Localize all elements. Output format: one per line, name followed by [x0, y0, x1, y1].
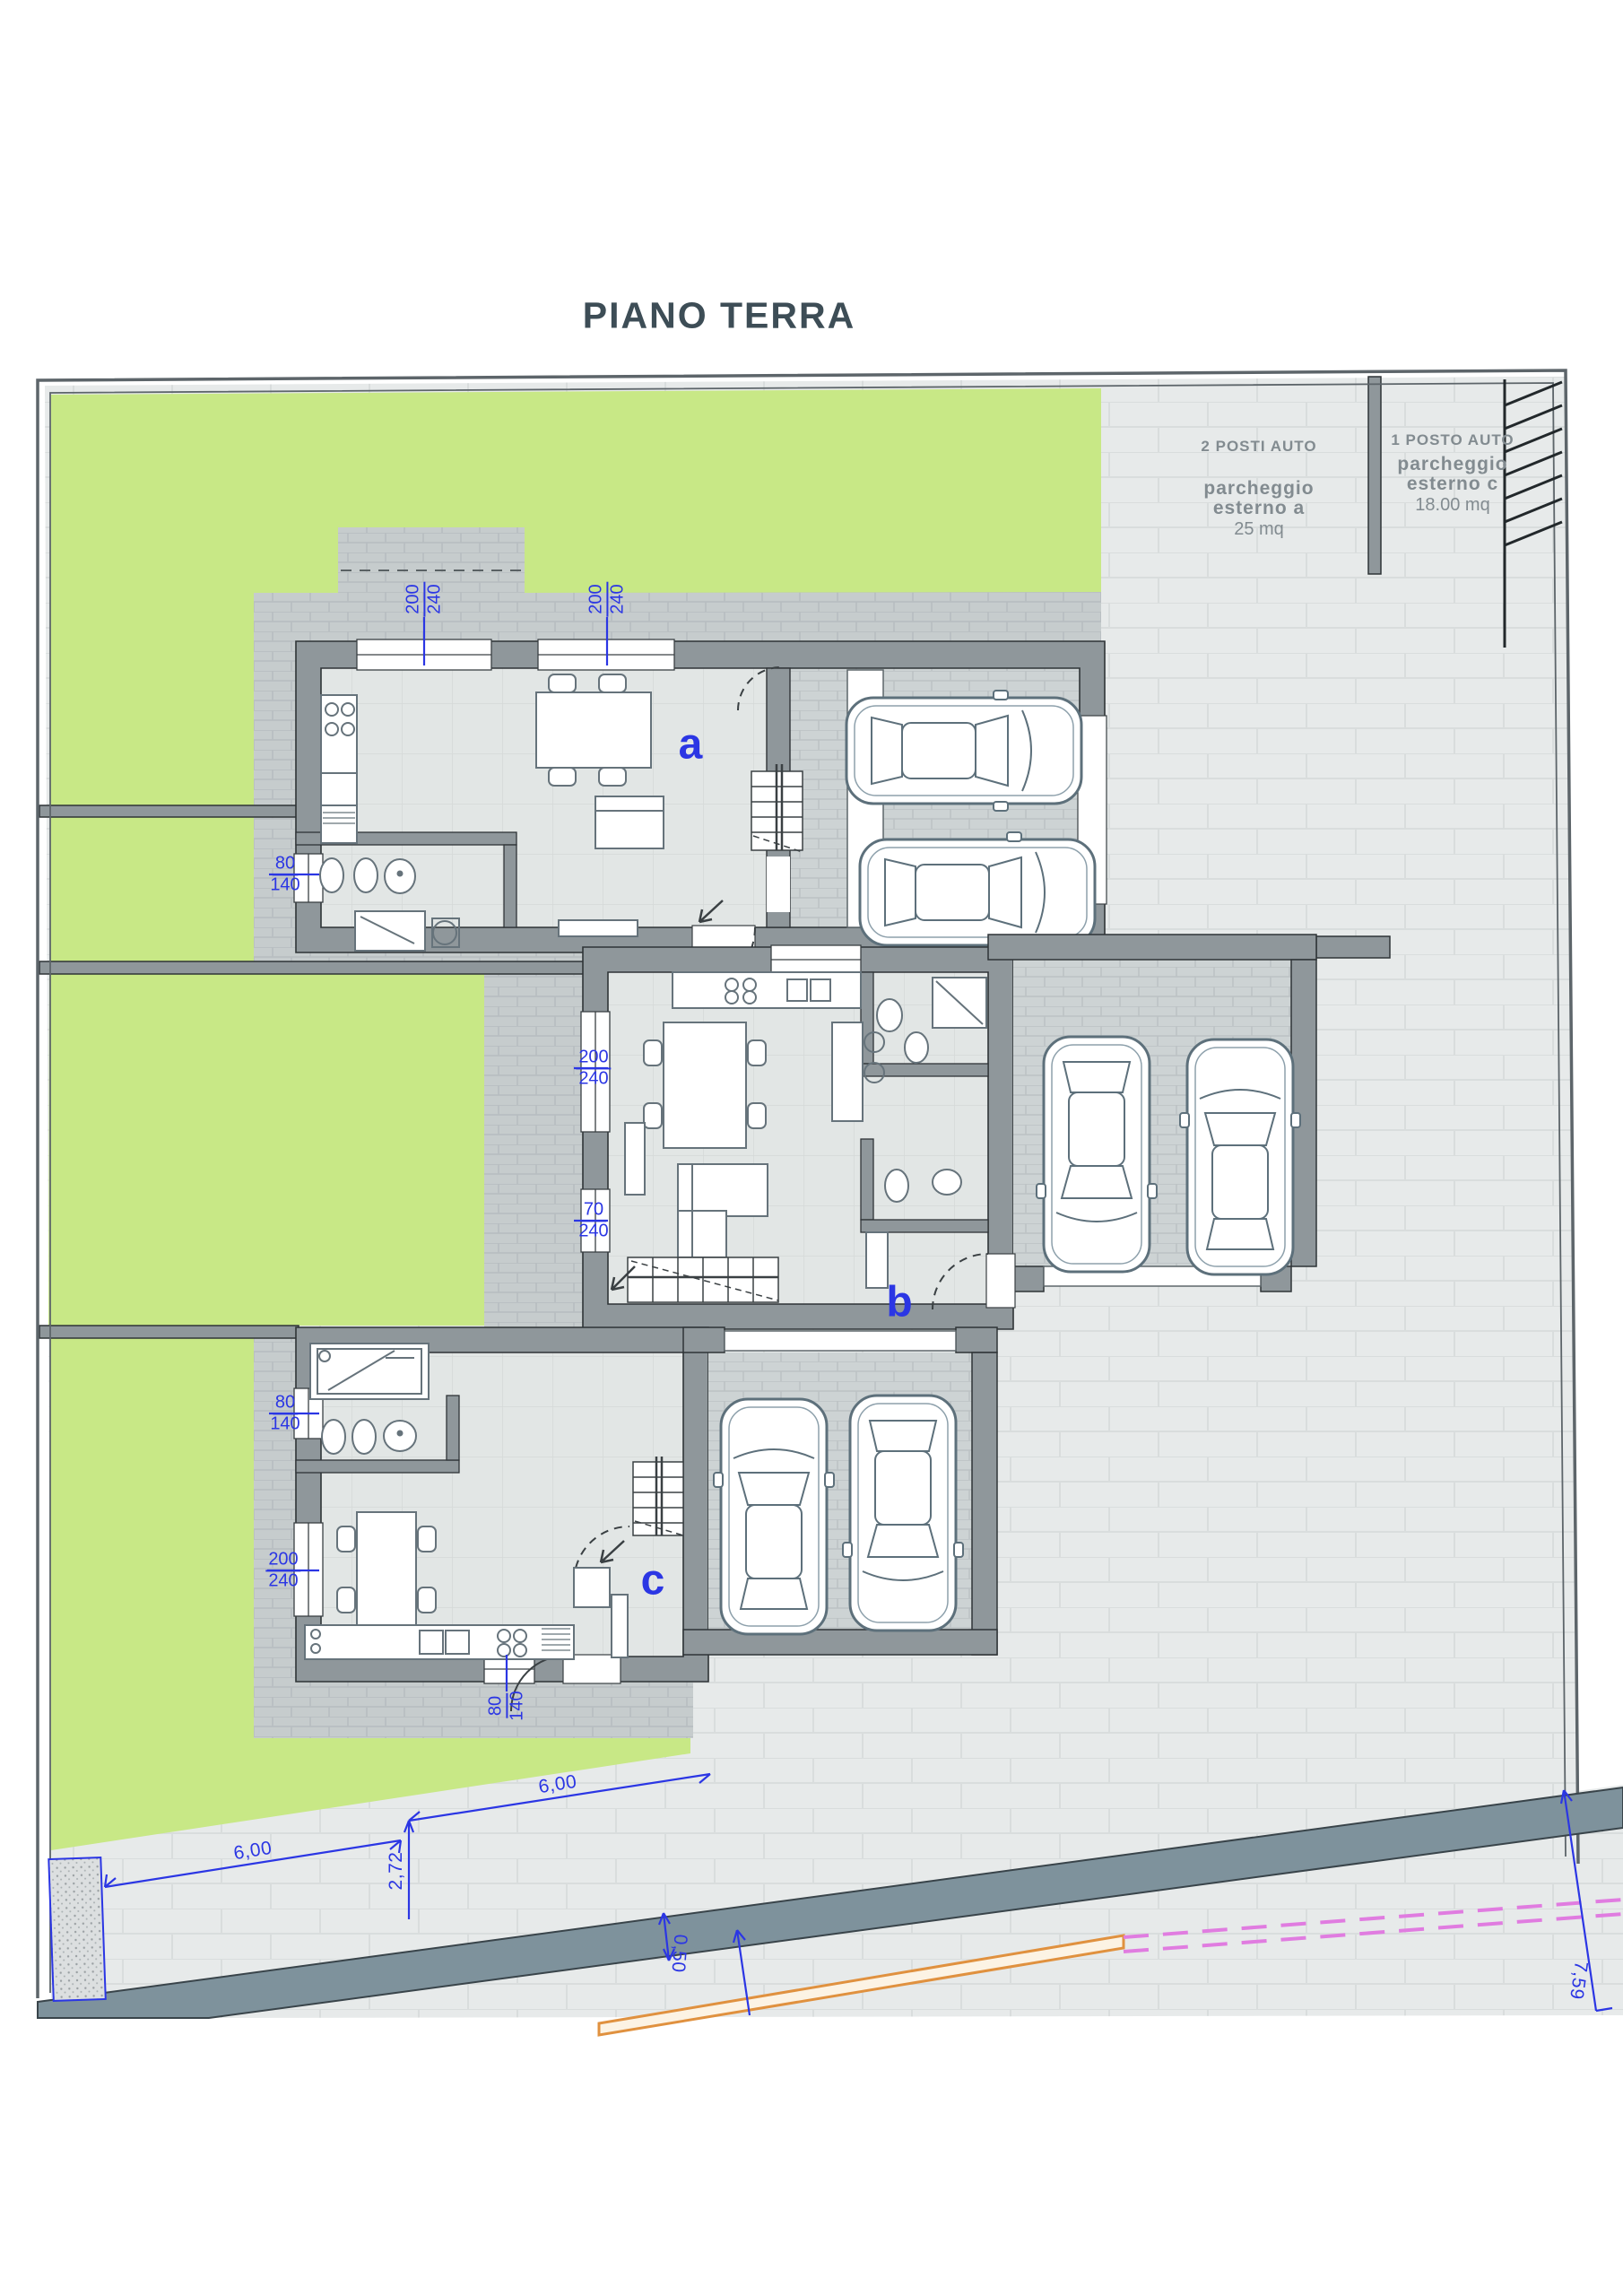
parking-a-area: 25 mq	[1234, 518, 1284, 540]
parking-c-area: 18.00 mq	[1415, 494, 1489, 516]
parking-a-count: 2 POSTI AUTO	[1201, 438, 1316, 456]
gate-pad	[48, 1857, 105, 2001]
lawn-left-a	[50, 816, 254, 961]
dim-b-living: 200 240	[576, 1048, 611, 1088]
dim-value: 240	[608, 581, 628, 616]
car-garage-c-1	[714, 1399, 834, 1634]
dim-value: 140	[267, 875, 302, 895]
dim-value: 200	[265, 1550, 300, 1571]
dim-b-small: 70 240	[576, 1200, 611, 1240]
page-title: PIANO TERRA	[583, 295, 855, 337]
parking-label-a: 2 POSTI AUTO parcheggio esterno a 25 mq	[1151, 438, 1367, 540]
dim-value: 200	[586, 581, 608, 616]
unit-c-letter: c	[641, 1556, 665, 1605]
unit-b-entry-gap	[986, 1254, 1015, 1308]
dim-value: 140	[508, 1688, 527, 1723]
parking-a-line1: parcheggio	[1203, 479, 1314, 499]
parking-c-count: 1 POSTO AUTO	[1391, 431, 1514, 449]
unit-a-letter: a	[679, 720, 703, 770]
dim-value: 70	[581, 1200, 606, 1222]
dim-value: 80	[273, 854, 298, 875]
car-garage-c-2	[843, 1396, 963, 1631]
site-dim-road: 0,50	[667, 1934, 691, 1973]
car-garage-a-1	[846, 691, 1081, 811]
site-dim-depth: 2,72	[386, 1852, 407, 1891]
stairs-a	[751, 764, 803, 852]
dim-value: 80	[486, 1693, 508, 1718]
stairs-b	[628, 1257, 778, 1302]
dim-value: 240	[576, 1069, 611, 1089]
parking-a-line2: esterno a	[1213, 499, 1305, 518]
unit-c-building	[294, 1327, 997, 1711]
dim-c-bath: 80 140	[267, 1393, 302, 1433]
dim-value: 80	[273, 1393, 298, 1414]
parking-c-line2: esterno c	[1407, 474, 1498, 494]
floor-plan-drawing	[0, 0, 1623, 2296]
garage-c-opening	[725, 1331, 956, 1351]
stairs-c	[633, 1457, 683, 1535]
parking-label-c: 1 POSTO AUTO parcheggio esterno c 18.00 …	[1363, 431, 1542, 516]
dim-value: 140	[267, 1414, 302, 1434]
dim-a-top-right: 200 240	[586, 581, 627, 616]
dim-value: 240	[576, 1222, 611, 1241]
dim-value: 240	[265, 1571, 300, 1591]
dim-value: 240	[425, 581, 445, 616]
unit-a-building	[294, 639, 1107, 990]
dim-value: 200	[576, 1048, 611, 1069]
unit-b-letter: b	[886, 1278, 912, 1327]
car-garage-b-2	[1180, 1039, 1300, 1274]
dim-a-bath: 80 140	[267, 854, 302, 894]
unit-b-building	[581, 935, 1316, 1329]
dim-c-kitchen: 80 140	[486, 1688, 526, 1723]
dim-value: 200	[404, 581, 425, 616]
car-garage-b-1	[1037, 1037, 1157, 1272]
dim-c-living: 200 240	[265, 1550, 300, 1590]
parking-c-line1: parcheggio	[1397, 455, 1507, 474]
floor-plan-page: PIANO TERRA 2 POSTI AUTO parcheggio este…	[0, 0, 1623, 2296]
unit-a-garage-door-gap	[767, 857, 790, 912]
lawn-garden-b	[48, 974, 484, 1326]
dim-a-top-left: 200 240	[404, 581, 444, 616]
